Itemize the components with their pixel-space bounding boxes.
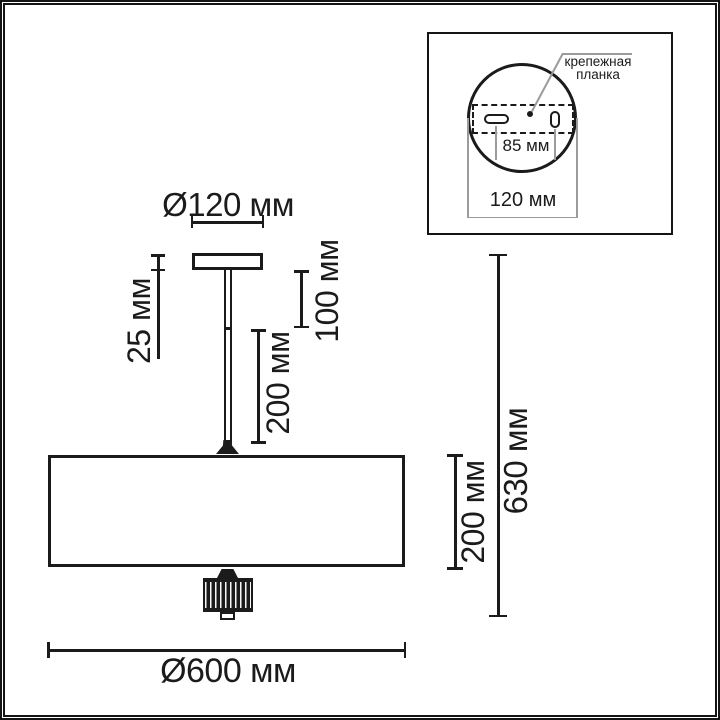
dim-rod-upper-label: 100 мм: [310, 211, 344, 371]
bracket-slot: [484, 114, 509, 124]
dim-inset-diameter-line-bottom: [467, 217, 578, 219]
dim-plate-height-label: 25 мм: [122, 241, 156, 401]
dim-plate-diameter-tick-left: [191, 215, 194, 228]
finial-cap: [220, 612, 235, 620]
dim-rod-upper-line: [300, 271, 303, 328]
dim-total-height-label: 630 мм: [499, 351, 533, 571]
diagram-canvas: Ø120 мм 25 мм 100 мм 200 мм 200 мм 630 м…: [0, 0, 720, 720]
finial-drum-ribs: [205, 582, 251, 608]
dim-plate-diameter-line: [192, 221, 263, 224]
lampshade: [48, 455, 405, 567]
dim-plate-diameter-tick-right: [262, 215, 265, 228]
dim-shade-diameter-tick-left: [47, 642, 50, 658]
dim-total-height-tick-top: [489, 254, 507, 257]
dim-shade-diameter-label: Ø600 мм: [78, 652, 378, 690]
dim-rod-upper-tick-bottom: [294, 326, 309, 329]
bracket-screw-hole: [550, 111, 560, 128]
hanging-rod: [224, 270, 232, 443]
dim-rod-lower-label: 200 мм: [261, 303, 295, 463]
bracket-label: крепежная планка: [548, 56, 648, 81]
dim-hole-spacing-label: 85 мм: [496, 137, 556, 155]
ceiling-plate: [192, 253, 263, 270]
dim-inset-diameter-label: 120 мм: [463, 190, 583, 211]
rod-joint: [224, 327, 232, 330]
dim-rod-upper-tick-top: [294, 270, 309, 273]
dim-total-height-tick-bottom: [489, 615, 507, 618]
bracket-label-line2: планка: [548, 69, 648, 82]
dim-shade-height-label: 200 мм: [456, 432, 490, 592]
finial-drum: [203, 578, 253, 612]
dim-shade-diameter-tick-right: [404, 642, 407, 658]
